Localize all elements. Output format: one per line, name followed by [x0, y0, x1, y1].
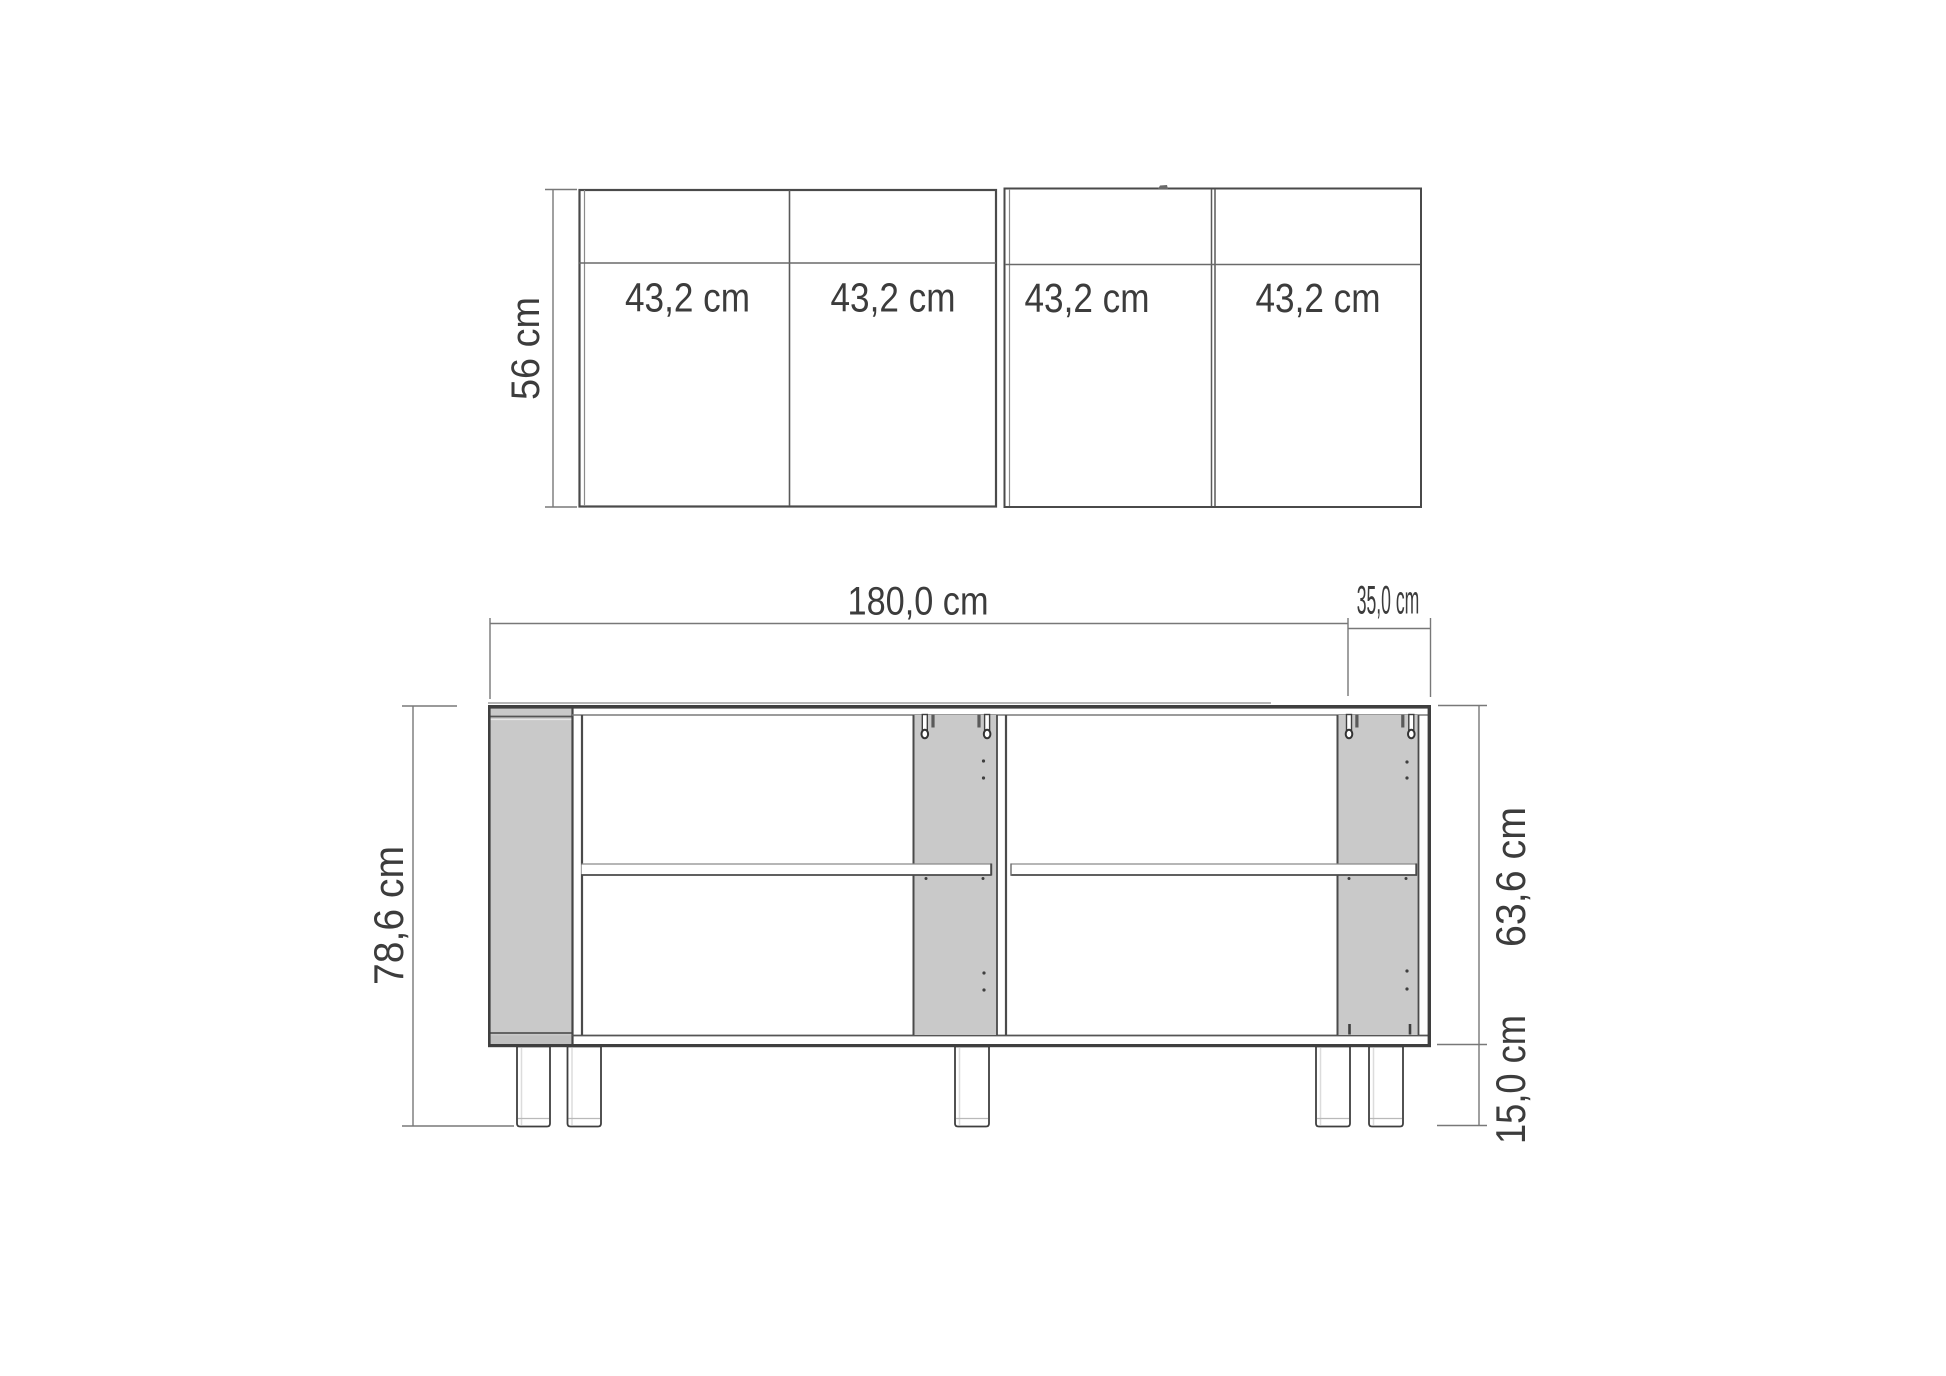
svg-text:43,2 cm: 43,2 cm: [831, 275, 956, 321]
svg-text:35,0 cm: 35,0 cm: [1357, 579, 1420, 623]
svg-text:78,6 cm: 78,6 cm: [365, 846, 412, 985]
svg-text:63,6 cm: 63,6 cm: [1487, 807, 1534, 947]
svg-text:56 cm: 56 cm: [504, 297, 548, 400]
svg-text:43,2 cm: 43,2 cm: [1025, 275, 1150, 321]
svg-text:15,0 cm: 15,0 cm: [1487, 1015, 1534, 1144]
svg-text:43,2 cm: 43,2 cm: [1256, 275, 1381, 321]
svg-text:180,0 cm: 180,0 cm: [848, 580, 989, 624]
svg-text:43,2 cm: 43,2 cm: [625, 275, 750, 321]
